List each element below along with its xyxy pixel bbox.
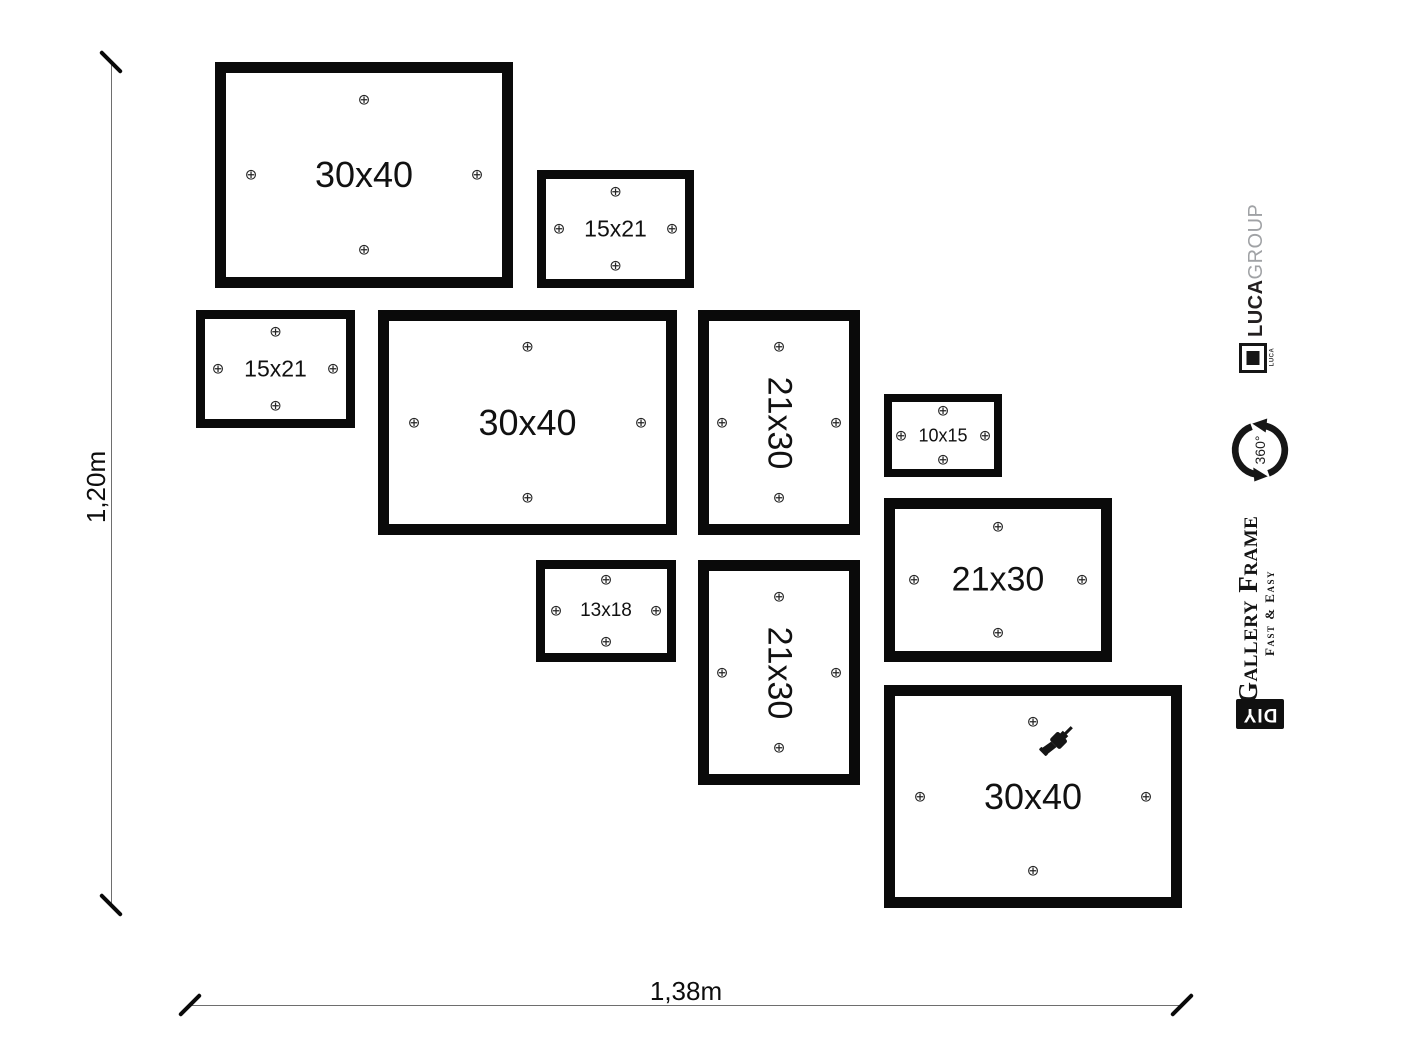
screw-mark-icon: ⊕ (773, 741, 786, 756)
frame-size-label: 30x40 (315, 154, 413, 196)
screw-mark-icon: ⊕ (1027, 864, 1040, 879)
screw-mark-icon: ⊕ (937, 404, 950, 419)
picture-frame-13x18-landscape: 13x18⊕⊕⊕⊕ (536, 560, 676, 662)
screw-mark-icon: ⊕ (635, 415, 648, 430)
picture-frame-21x30-portrait: 21x30⊕⊕⊕⊕ (698, 310, 860, 535)
screw-mark-icon: ⊕ (773, 491, 786, 506)
brand-group-text: GROUP (1245, 204, 1267, 280)
diy-badge: DIY (1236, 699, 1284, 729)
frame-size-label: 30x40 (984, 776, 1082, 818)
screw-mark-icon: ⊕ (521, 491, 534, 506)
screw-mark-icon: ⊕ (716, 665, 729, 680)
picture-frame-10x15-landscape: 10x15⊕⊕⊕⊕ (884, 394, 1002, 477)
screw-mark-icon: ⊕ (773, 590, 786, 605)
product-subtitle: Fast & Easy (1262, 523, 1277, 703)
frame-size-label: 13x18 (580, 600, 632, 622)
screw-mark-icon: ⊕ (521, 340, 534, 355)
screw-mark-icon: ⊕ (550, 604, 563, 619)
screw-mark-icon: ⊕ (992, 520, 1005, 535)
screw-mark-icon: ⊕ (716, 415, 729, 430)
luca-group-wordmark: LUCAGROUP (1245, 207, 1269, 337)
drill-icon (1035, 720, 1079, 764)
screw-mark-icon: ⊕ (609, 259, 622, 274)
logo-outer-square (1239, 343, 1267, 373)
screw-mark-icon: ⊕ (914, 789, 927, 804)
frame-size-label: 21x30 (952, 561, 1045, 600)
screw-mark-icon: ⊕ (408, 415, 421, 430)
frame-size-label: 15x21 (244, 356, 307, 383)
screw-mark-icon: ⊕ (269, 325, 282, 340)
screw-mark-icon: ⊕ (1140, 789, 1153, 804)
screw-mark-icon: ⊕ (212, 362, 225, 377)
height-dimension-label: 1,20m (83, 446, 109, 528)
screw-mark-icon: ⊕ (979, 428, 992, 443)
picture-frame-15x21-landscape: 15x21⊕⊕⊕⊕ (537, 170, 694, 288)
frame-size-label: 30x40 (478, 402, 576, 444)
screw-mark-icon: ⊕ (245, 168, 258, 183)
frame-size-label: 15x21 (584, 216, 647, 243)
brand-luca-text: LUCA (1245, 279, 1267, 337)
diy-label: DIY (1236, 699, 1284, 729)
picture-frame-21x30-portrait: 21x30⊕⊕⊕⊕ (698, 560, 860, 785)
rotation-360-label: 360° (1252, 436, 1268, 465)
screw-mark-icon: ⊕ (327, 362, 340, 377)
screw-mark-icon: ⊕ (471, 168, 484, 183)
screw-mark-icon: ⊕ (358, 243, 371, 258)
screw-mark-icon: ⊕ (600, 635, 613, 650)
screw-mark-icon: ⊕ (609, 185, 622, 200)
picture-frame-15x21-landscape: 15x21⊕⊕⊕⊕ (196, 310, 355, 428)
screw-mark-icon: ⊕ (650, 604, 663, 619)
screw-mark-icon: ⊕ (937, 453, 950, 468)
screw-mark-icon: ⊕ (553, 222, 566, 237)
width-dimension-label: 1,38m (636, 976, 736, 1007)
screw-mark-icon: ⊕ (269, 399, 282, 414)
picture-frame-21x30-landscape: 21x30⊕⊕⊕⊕ (884, 498, 1112, 662)
gallery-frame-wordmark: Gallery Frame Fast & Easy (1235, 523, 1283, 703)
screw-mark-icon: ⊕ (830, 665, 843, 680)
screw-mark-icon: ⊕ (358, 93, 371, 108)
height-dimension-line (111, 62, 112, 905)
screw-mark-icon: ⊕ (1076, 573, 1089, 588)
screw-mark-icon: ⊕ (773, 340, 786, 355)
frame-size-label: 10x15 (918, 425, 967, 446)
screw-mark-icon: ⊕ (666, 222, 679, 237)
picture-frame-30x40-landscape: 30x40⊕⊕⊕⊕ (884, 685, 1182, 908)
screw-mark-icon: ⊕ (908, 573, 921, 588)
frame-size-label: 21x30 (760, 626, 799, 719)
screw-mark-icon: ⊕ (600, 573, 613, 588)
gallery-wall-template-diagram: 1,20m 1,38m 30x40⊕⊕⊕⊕15x21⊕⊕⊕⊕15x21⊕⊕⊕⊕3… (0, 0, 1412, 1063)
rotation-360-icon: 360° (1228, 418, 1292, 482)
luca-frame-logo-icon: LUCA (1239, 341, 1279, 381)
screw-mark-icon: ⊕ (992, 626, 1005, 641)
picture-frame-30x40-landscape: 30x40⊕⊕⊕⊕ (215, 62, 513, 288)
screw-mark-icon: ⊕ (830, 415, 843, 430)
frame-size-label: 21x30 (760, 376, 799, 469)
screw-mark-icon: ⊕ (895, 428, 908, 443)
picture-frame-30x40-landscape: 30x40⊕⊕⊕⊕ (378, 310, 677, 535)
logo-inner-square (1247, 351, 1260, 365)
logo-luca-text: LUCA (1269, 348, 1275, 367)
product-title: Gallery Frame (1235, 523, 1262, 703)
